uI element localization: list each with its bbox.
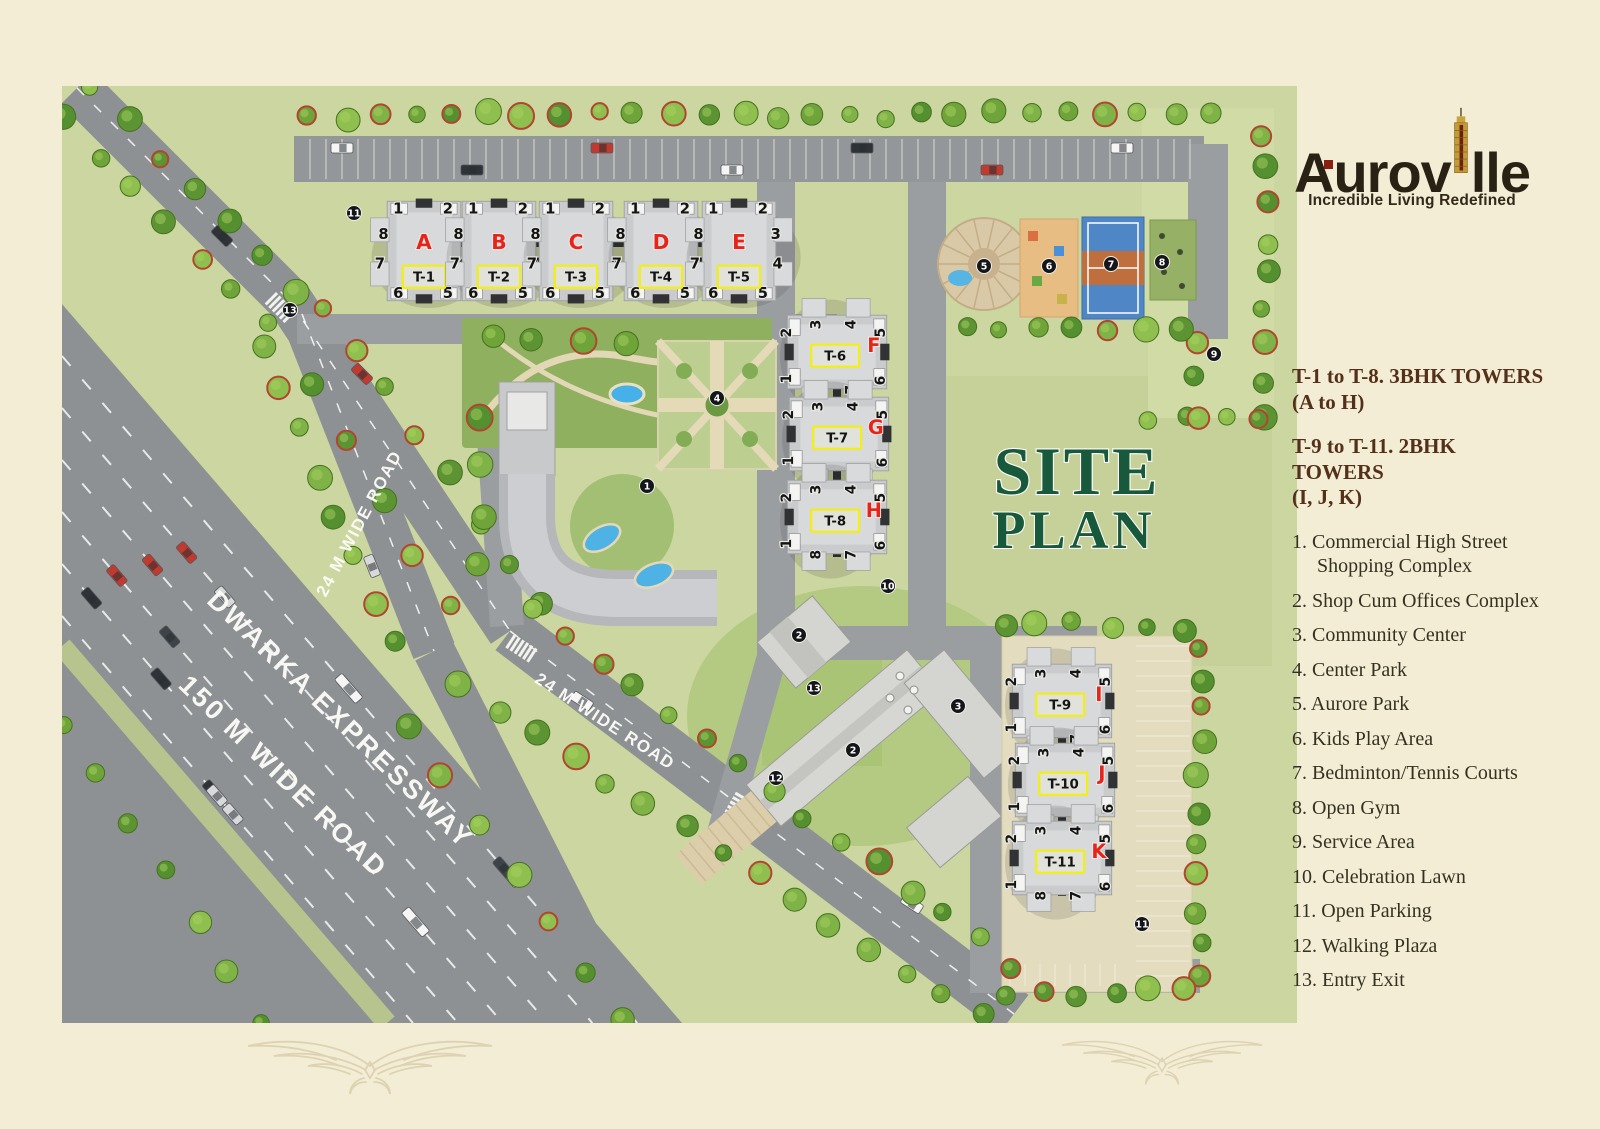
- legend-item: 1. Commercial High Street Shopping Compl…: [1292, 530, 1544, 578]
- svg-text:6: 6: [1101, 804, 1117, 814]
- svg-text:1: 1: [1004, 723, 1020, 733]
- svg-text:8: 8: [453, 226, 463, 243]
- svg-text:6: 6: [1098, 882, 1114, 892]
- svg-text:2: 2: [1004, 834, 1020, 844]
- map-marker-3: 3: [951, 699, 966, 714]
- vehicle: [331, 143, 353, 153]
- svg-text:4: 4: [845, 402, 861, 412]
- map-marker-2: 2: [792, 628, 807, 643]
- map-marker-8: 8: [1155, 255, 1170, 270]
- svg-text:B: B: [491, 230, 506, 254]
- svg-text:T-8: T-8: [824, 514, 846, 529]
- svg-text:2: 2: [1004, 677, 1020, 687]
- vehicle: [851, 143, 873, 153]
- tower-info: T-1 to T-8. 3BHK TOWERS (A to H) T-9 to …: [1292, 364, 1550, 530]
- svg-text:2: 2: [779, 493, 795, 503]
- svg-text:6: 6: [873, 541, 889, 551]
- map-marker-4: 4: [710, 391, 725, 406]
- svg-text:1: 1: [644, 482, 651, 493]
- vehicle: [981, 165, 1003, 175]
- svg-text:8: 8: [378, 226, 388, 243]
- svg-text:2: 2: [779, 328, 795, 338]
- svg-text:H: H: [866, 499, 882, 522]
- svg-text:1: 1: [1007, 802, 1023, 812]
- svg-text:6: 6: [875, 458, 891, 468]
- svg-text:8: 8: [1159, 258, 1166, 269]
- svg-text:3: 3: [1033, 669, 1049, 679]
- svg-text:2: 2: [850, 746, 857, 757]
- svg-text:4: 4: [1071, 748, 1087, 758]
- svg-text:E: E: [732, 230, 746, 254]
- map-marker-11: 11: [347, 206, 362, 221]
- vehicle: [461, 165, 483, 175]
- site-title-line1: SITE: [994, 433, 1161, 509]
- svg-text:4: 4: [1068, 669, 1084, 679]
- svg-text:7: 7: [450, 255, 460, 272]
- wing-ornaments: [0, 1022, 1600, 1129]
- legend-item: 11. Open Parking: [1292, 899, 1544, 923]
- svg-text:F: F: [867, 334, 880, 357]
- svg-text:2: 2: [796, 631, 803, 642]
- legend-item: 13. Entry Exit: [1292, 968, 1544, 992]
- svg-text:8: 8: [530, 226, 540, 243]
- svg-text:T-10: T-10: [1048, 777, 1079, 792]
- svg-text:6: 6: [1098, 725, 1114, 735]
- svg-text:12: 12: [769, 774, 782, 785]
- map-marker-12: 12: [769, 771, 784, 786]
- svg-text:1: 1: [630, 200, 640, 217]
- svg-text:8: 8: [693, 226, 703, 243]
- logo: Aurov lle Incredible Living Redefined: [1294, 90, 1530, 210]
- svg-text:D: D: [653, 230, 670, 254]
- map-marker-1: 1: [640, 479, 655, 494]
- map-marker-5: 5: [977, 259, 992, 274]
- svg-text:T-2: T-2: [488, 270, 510, 285]
- legend-item: 10. Celebration Lawn: [1292, 865, 1544, 889]
- svg-text:11: 11: [347, 209, 360, 220]
- svg-text:4: 4: [714, 394, 721, 405]
- svg-text:8: 8: [808, 550, 824, 560]
- svg-text:6: 6: [1046, 262, 1053, 273]
- map-marker-13: 13: [283, 303, 298, 318]
- svg-text:T-6: T-6: [824, 349, 846, 364]
- svg-text:3: 3: [808, 320, 824, 330]
- svg-text:3: 3: [1036, 748, 1052, 758]
- svg-text:7: 7: [1068, 891, 1084, 901]
- map-marker-6: 6: [1042, 259, 1057, 274]
- svg-text:T-5: T-5: [728, 270, 750, 285]
- svg-text:6: 6: [873, 376, 889, 386]
- svg-text:1: 1: [708, 200, 718, 217]
- svg-text:K: K: [1091, 840, 1107, 863]
- legend-item: 8. Open Gym: [1292, 796, 1544, 820]
- logo-red-square: [1324, 160, 1333, 169]
- legend-item: 7. Bedminton/Tennis Courts: [1292, 761, 1544, 785]
- vehicle: [591, 143, 613, 153]
- tower-info-3bhk: T-1 to T-8. 3BHK TOWERS (A to H): [1292, 364, 1550, 415]
- vehicle: [721, 165, 743, 175]
- svg-text:T-4: T-4: [650, 270, 672, 285]
- svg-text:1: 1: [781, 456, 797, 466]
- svg-text:C: C: [569, 230, 584, 254]
- map-marker-9: 9: [1207, 347, 1222, 362]
- svg-text:7: 7: [1108, 260, 1115, 271]
- svg-text:1: 1: [468, 200, 478, 217]
- svg-text:2: 2: [781, 410, 797, 420]
- svg-text:13: 13: [807, 684, 820, 695]
- site-title-line2: PLAN: [993, 500, 1156, 560]
- legend-item: 3. Community Center: [1292, 623, 1544, 647]
- tower-icon: [1451, 92, 1471, 192]
- legend-item: 6. Kids Play Area: [1292, 727, 1544, 751]
- svg-text:9: 9: [1211, 350, 1218, 361]
- svg-text:I: I: [1095, 683, 1102, 706]
- svg-text:11: 11: [1135, 920, 1148, 931]
- svg-text:3: 3: [808, 485, 824, 495]
- svg-text:G: G: [868, 416, 884, 439]
- logo-text-prefix: Aurov: [1294, 148, 1451, 198]
- wing-ornament-left: [248, 1042, 492, 1094]
- legend-item: 2. Shop Cum Offices Complex: [1292, 589, 1544, 613]
- svg-text:A: A: [416, 230, 432, 254]
- svg-text:3: 3: [955, 702, 962, 713]
- svg-text:4: 4: [843, 320, 859, 330]
- svg-text:1: 1: [393, 200, 403, 217]
- svg-text:1: 1: [1004, 880, 1020, 890]
- svg-text:T-1: T-1: [413, 270, 435, 285]
- svg-text:1: 1: [779, 374, 795, 384]
- svg-text:2: 2: [595, 200, 605, 217]
- legend-item: 12. Walking Plaza: [1292, 934, 1544, 958]
- svg-text:T-9: T-9: [1049, 698, 1071, 713]
- site-plan-map: 12837465AT-112837465BT-212837465CT-31283…: [62, 86, 1297, 1023]
- svg-text:8: 8: [1033, 891, 1049, 901]
- svg-text:T-11: T-11: [1045, 855, 1076, 870]
- svg-text:4: 4: [843, 485, 859, 495]
- logo-wordmark: Aurov lle: [1294, 90, 1530, 192]
- svg-text:4: 4: [773, 255, 783, 272]
- map-marker-7: 7: [1104, 257, 1119, 272]
- svg-text:2: 2: [443, 200, 453, 217]
- svg-text:T-3: T-3: [565, 270, 587, 285]
- svg-text:7: 7: [690, 255, 700, 272]
- garden-pool: [610, 384, 644, 404]
- svg-text:7: 7: [843, 550, 859, 560]
- svg-text:J: J: [1096, 762, 1105, 785]
- svg-text:8: 8: [615, 226, 625, 243]
- svg-text:1: 1: [779, 539, 795, 549]
- svg-text:4: 4: [1068, 826, 1084, 836]
- legend-list: 1. Commercial High Street Shopping Compl…: [1292, 530, 1544, 1003]
- logo-text-suffix: lle: [1471, 148, 1530, 198]
- map-marker-2: 2: [846, 743, 861, 758]
- legend-item: 4. Center Park: [1292, 658, 1544, 682]
- legend-item: 5. Aurore Park: [1292, 692, 1544, 716]
- tower-info-2bhk: T-9 to T-11. 2BHK TOWERS (I, J, K): [1292, 434, 1550, 511]
- svg-text:1: 1: [545, 200, 555, 217]
- svg-text:2: 2: [1007, 756, 1023, 766]
- svg-text:2: 2: [518, 200, 528, 217]
- svg-text:7: 7: [375, 255, 385, 272]
- svg-text:T-7: T-7: [826, 431, 848, 446]
- svg-text:10: 10: [881, 582, 895, 593]
- svg-text:5: 5: [981, 262, 988, 273]
- svg-text:2: 2: [680, 200, 690, 217]
- svg-text:2: 2: [758, 200, 768, 217]
- map-marker-13: 13: [807, 681, 822, 696]
- wing-ornament-right: [1062, 1042, 1262, 1085]
- svg-text:13: 13: [283, 306, 296, 317]
- svg-text:3: 3: [771, 226, 781, 243]
- svg-text:7: 7: [527, 255, 537, 272]
- svg-text:3: 3: [1033, 826, 1049, 836]
- legend-item: 9. Service Area: [1292, 830, 1544, 854]
- svg-text:3: 3: [810, 402, 826, 412]
- svg-text:7: 7: [612, 255, 622, 272]
- map-marker-11: 11: [1135, 917, 1150, 932]
- map-marker-10: 10: [881, 579, 896, 594]
- vehicle: [1111, 143, 1133, 153]
